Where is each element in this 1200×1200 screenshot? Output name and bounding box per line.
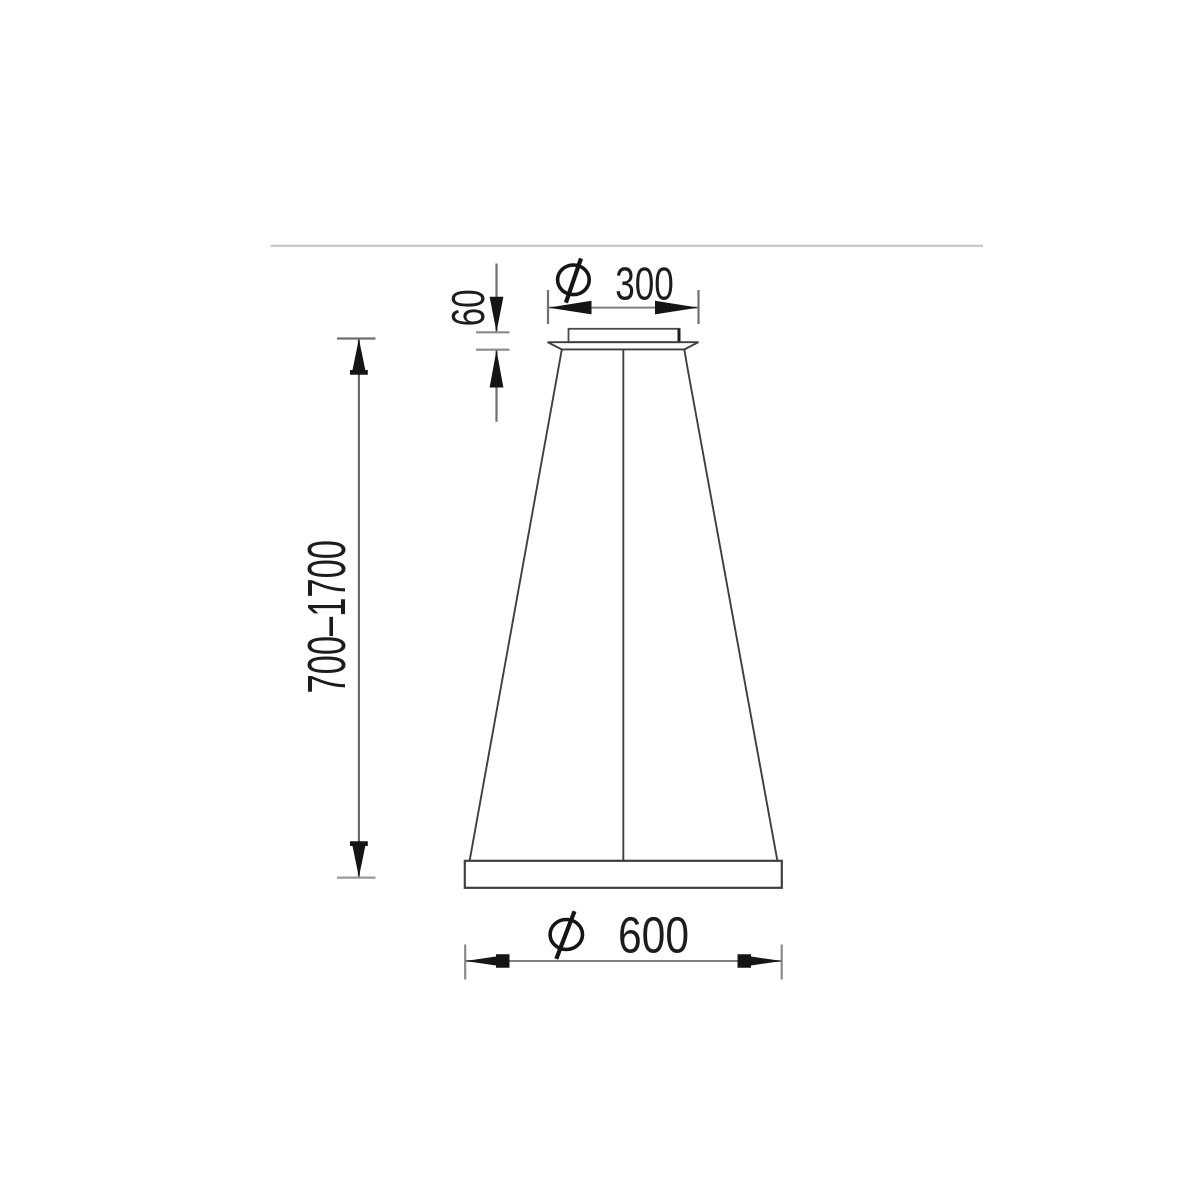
svg-text:60: 60: [442, 289, 494, 326]
svg-text:700–1700: 700–1700: [298, 540, 357, 694]
svg-text:300: 300: [615, 257, 674, 309]
svg-text:600: 600: [618, 907, 689, 964]
